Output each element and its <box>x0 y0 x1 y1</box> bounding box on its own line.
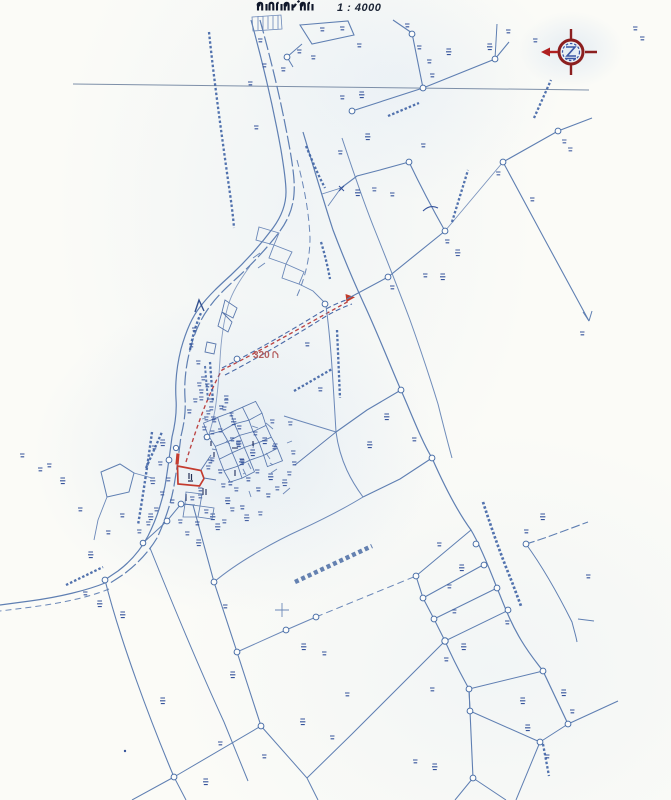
svg-text:320: 320 <box>253 350 270 361</box>
svg-text:1 : 4000: 1 : 4000 <box>337 2 382 14</box>
